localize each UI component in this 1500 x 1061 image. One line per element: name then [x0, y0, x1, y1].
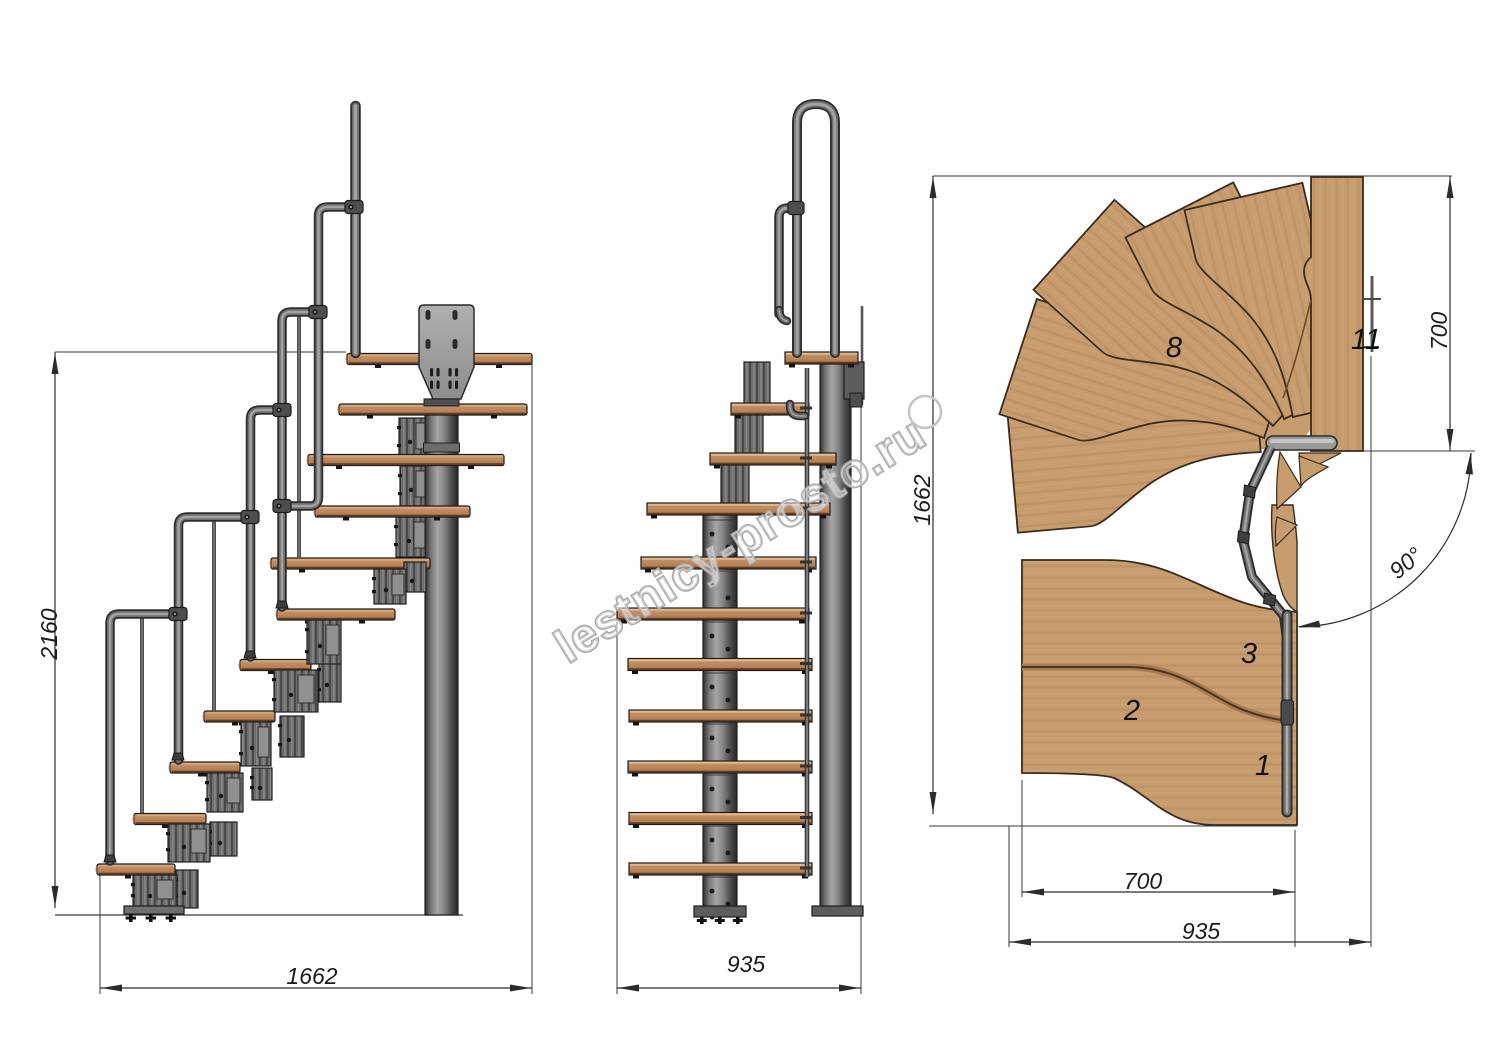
svg-text:1662: 1662 [909, 474, 935, 525]
svg-text:11: 11 [1351, 324, 1381, 356]
svg-text:935: 935 [727, 951, 766, 977]
svg-text:935: 935 [1182, 918, 1221, 944]
svg-text:3: 3 [1241, 638, 1257, 670]
svg-text:1: 1 [1255, 750, 1271, 782]
svg-text:8: 8 [1166, 332, 1182, 364]
svg-text:700: 700 [1426, 312, 1452, 351]
svg-text:2160: 2160 [36, 608, 62, 660]
svg-text:2: 2 [1123, 695, 1140, 727]
svg-text:700: 700 [1124, 868, 1163, 894]
svg-text:1662: 1662 [286, 963, 337, 989]
